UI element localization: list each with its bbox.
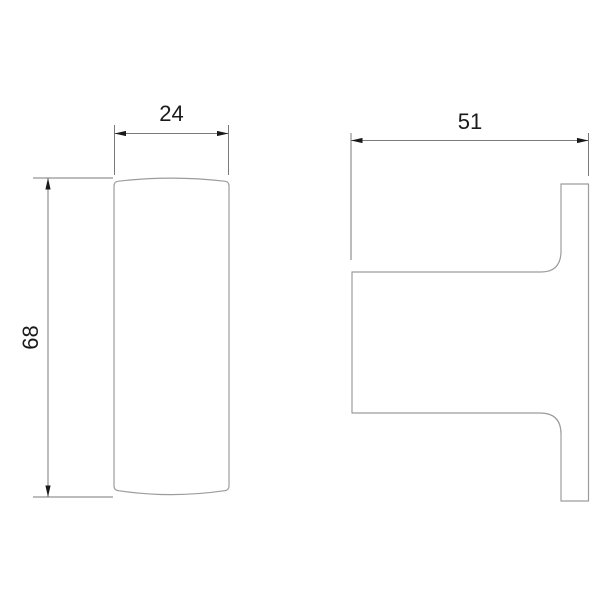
front-view-outline (114, 178, 229, 495)
front-view (114, 178, 229, 495)
side-view-outline (352, 184, 589, 501)
arrowhead-bottom (45, 486, 50, 498)
arrowhead-left (115, 131, 127, 136)
technical-drawing: 24 68 51 (0, 0, 600, 600)
width-dimension: 24 (115, 101, 229, 175)
arrowhead-right (217, 131, 229, 136)
dimension-value-depth: 51 (458, 109, 482, 134)
arrowhead-top (45, 178, 50, 190)
height-dimension: 68 (18, 178, 113, 497)
dimension-value-width: 24 (159, 101, 183, 126)
drawing-svg: 24 68 51 (0, 0, 600, 600)
arrowhead-left (351, 138, 363, 143)
side-view (352, 184, 589, 501)
arrowhead-right (577, 138, 589, 143)
dimension-value-height: 68 (18, 325, 43, 349)
depth-dimension: 51 (351, 109, 589, 260)
